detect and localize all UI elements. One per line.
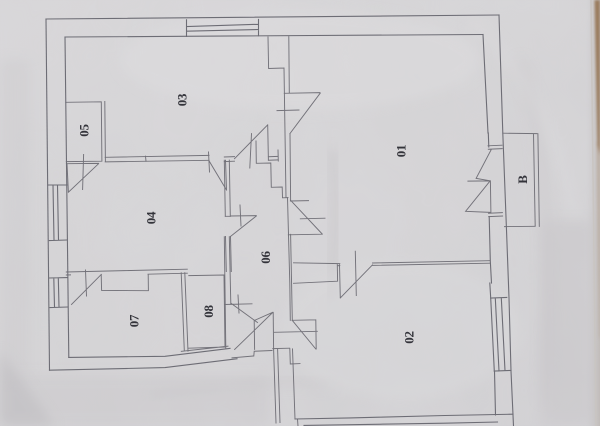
svg-text:01: 01: [394, 145, 409, 157]
svg-text:03: 03: [175, 93, 190, 106]
svg-text:02: 02: [402, 331, 417, 343]
svg-text:05: 05: [77, 124, 92, 137]
svg-text:04: 04: [144, 211, 159, 224]
svg-text:07: 07: [127, 314, 142, 327]
svg-text:B: B: [515, 175, 530, 184]
svg-text:06: 06: [258, 251, 273, 264]
svg-text:08: 08: [201, 305, 216, 318]
